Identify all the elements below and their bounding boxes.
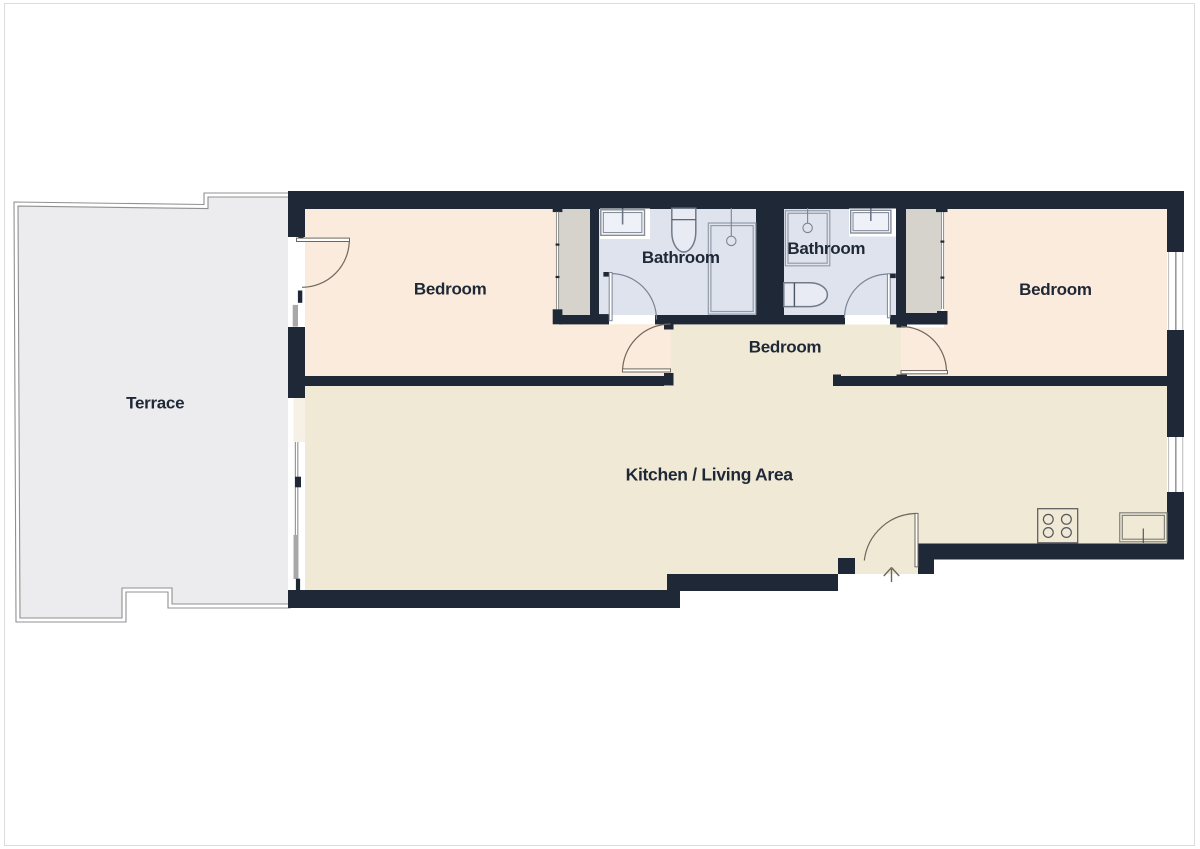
svg-text:Bathroom: Bathroom	[787, 239, 865, 258]
svg-text:Terrace: Terrace	[126, 393, 184, 412]
svg-text:Bedroom: Bedroom	[414, 279, 487, 298]
svg-text:Bedroom: Bedroom	[1019, 280, 1092, 299]
svg-text:Bathroom: Bathroom	[642, 248, 720, 267]
svg-text:Bedroom: Bedroom	[749, 338, 822, 357]
svg-text:Kitchen / Living Area: Kitchen / Living Area	[626, 464, 794, 484]
